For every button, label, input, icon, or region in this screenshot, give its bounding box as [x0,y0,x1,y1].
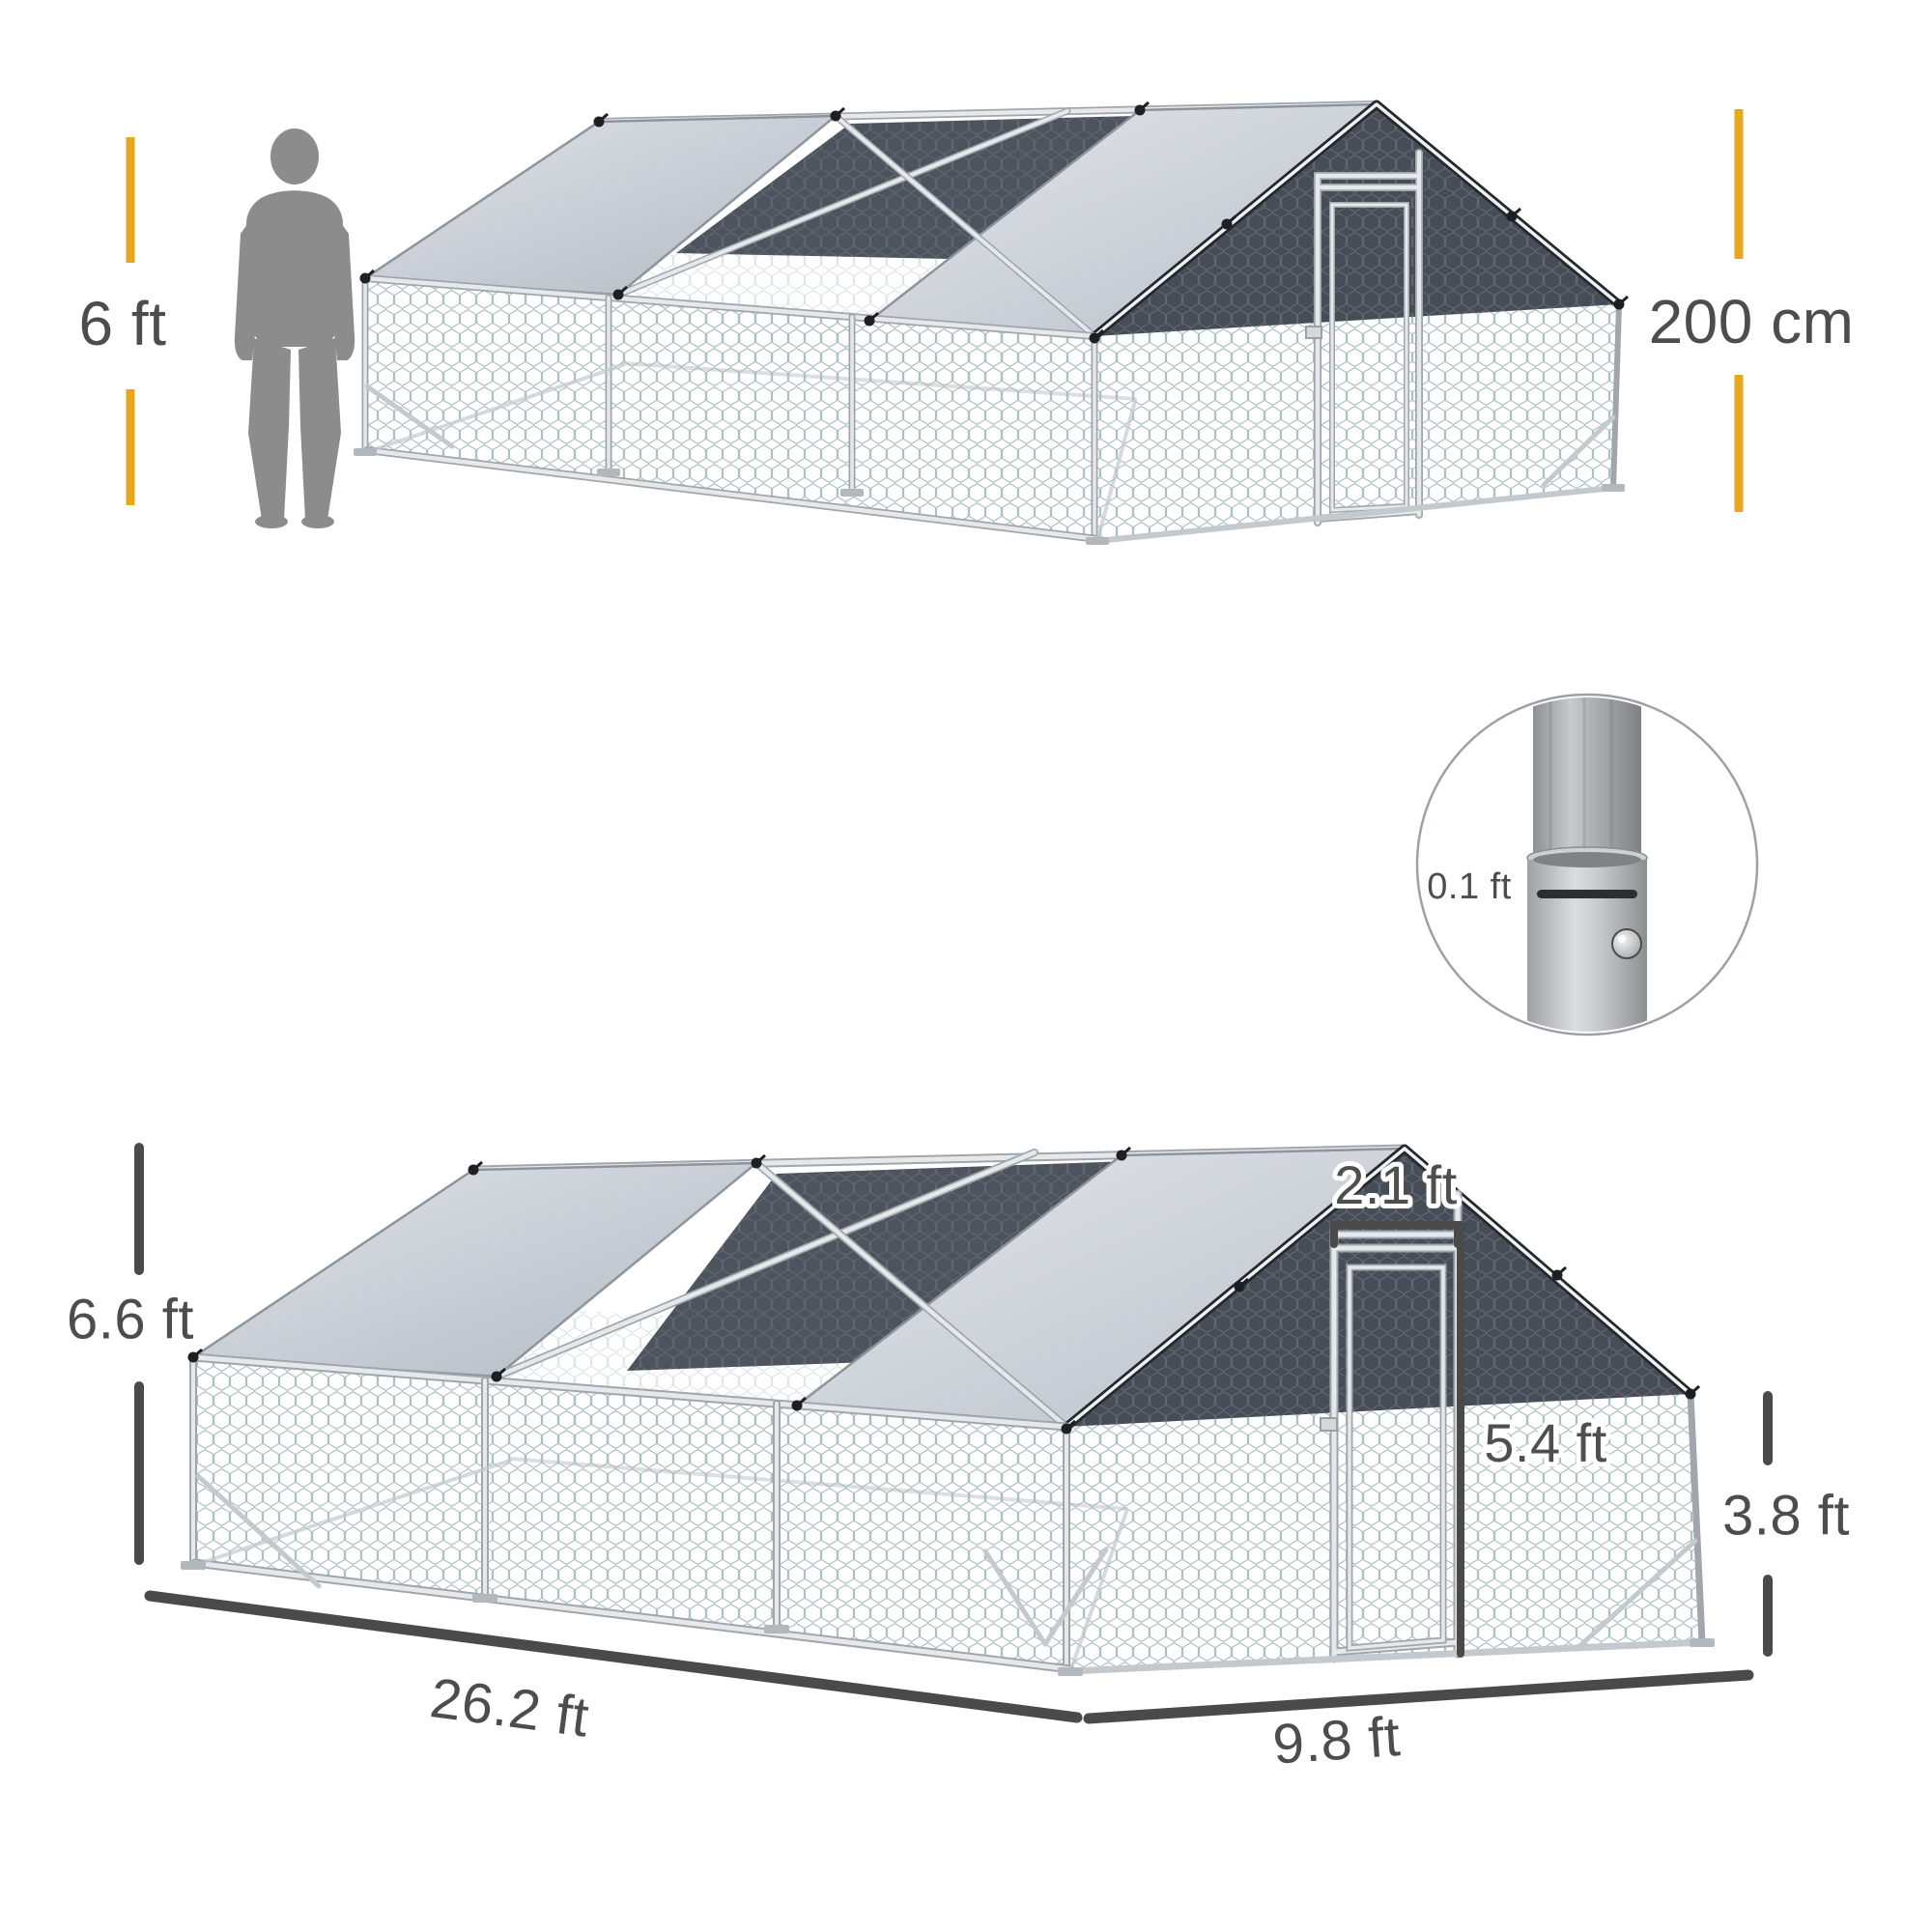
chicken-run-render-small [354,102,1628,545]
label-pole-diameter: 0.1 ft [1427,867,1512,907]
label-total-height: 6.6 ft [67,1288,194,1350]
scale-view: 6 ft 200 cm [79,102,1855,545]
dimension-wall-height: 3.8 ft [1722,1396,1850,1652]
dimension-human-height: 6 ft [79,137,167,505]
dimension-cage-height-metric: 200 cm [1649,109,1855,512]
label-door-width: 2.1 ft [1334,1154,1458,1215]
label-door-height: 5.4 ft [1484,1412,1607,1473]
label-cage-height-metric: 200 cm [1649,287,1855,356]
human-scale-silhouette-icon [235,128,355,528]
label-human-height: 6 ft [79,289,167,358]
dimension-view: 6.6 ft 2.1 ft 5.4 ft 3.8 ft 26.2 ft 9.8 … [67,1148,1850,1776]
label-wall-height: 3.8 ft [1722,1484,1850,1547]
sleeve-slot [1537,890,1637,898]
dimension-run-width: 9.8 ft [1089,1675,1748,1776]
label-run-width: 9.8 ft [1271,1705,1403,1776]
door-latch-large [1321,1418,1337,1431]
door-latch [1306,327,1321,338]
dimension-total-height: 6.6 ft [67,1148,194,1560]
pole-joint-detail-circle-icon: 0.1 ft [1417,688,1757,1041]
diagram-svg: 6 ft 200 cm [0,0,1932,1932]
joint-bolt [1612,929,1641,958]
gable-wall-mesh [1094,304,1619,541]
label-run-length: 26.2 ft [427,1666,593,1749]
infographic-canvas: 6 ft 200 cm [0,0,1932,1932]
